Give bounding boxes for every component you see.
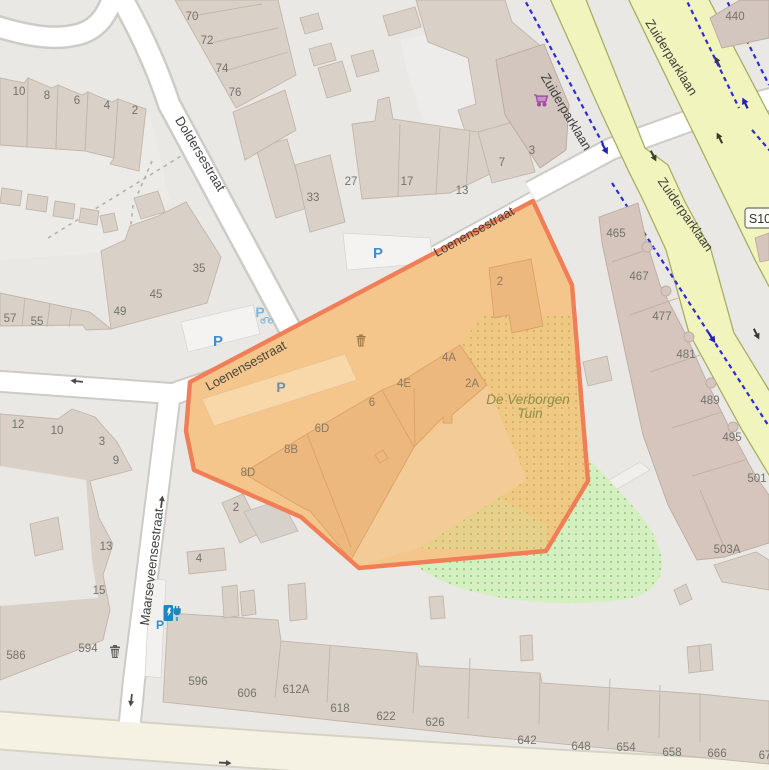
svg-text:606: 606 — [237, 688, 256, 700]
svg-text:2: 2 — [497, 276, 503, 288]
svg-text:74: 74 — [216, 63, 229, 75]
svg-text:8: 8 — [44, 90, 50, 102]
svg-text:12: 12 — [12, 419, 25, 431]
svg-text:3: 3 — [99, 436, 105, 448]
svg-text:489: 489 — [700, 395, 719, 407]
svg-text:67: 67 — [759, 750, 769, 762]
svg-text:666: 666 — [707, 748, 726, 760]
svg-text:S10: S10 — [749, 212, 769, 226]
svg-text:De Verborgen: De Verborgen — [486, 392, 570, 407]
svg-text:642: 642 — [517, 735, 536, 747]
svg-text:27: 27 — [345, 176, 358, 188]
svg-text:467: 467 — [629, 271, 648, 283]
svg-text:503A: 503A — [714, 544, 741, 556]
svg-text:76: 76 — [229, 87, 242, 99]
svg-text:4E: 4E — [397, 378, 411, 390]
svg-text:49: 49 — [114, 306, 127, 318]
svg-text:P: P — [255, 304, 264, 320]
svg-text:622: 622 — [376, 711, 395, 723]
svg-text:57: 57 — [4, 313, 17, 325]
svg-text:3: 3 — [529, 145, 535, 157]
svg-text:586: 586 — [6, 650, 25, 662]
svg-text:45: 45 — [150, 289, 163, 301]
svg-text:495: 495 — [722, 432, 741, 444]
svg-text:55: 55 — [31, 316, 44, 328]
svg-text:465: 465 — [606, 228, 625, 240]
svg-text:440: 440 — [725, 11, 744, 23]
svg-text:2: 2 — [233, 502, 239, 514]
svg-text:P: P — [213, 333, 223, 350]
svg-text:658: 658 — [662, 747, 681, 759]
svg-text:13: 13 — [100, 541, 113, 553]
svg-text:612A: 612A — [283, 684, 310, 696]
svg-text:4: 4 — [196, 553, 203, 565]
svg-text:618: 618 — [330, 703, 349, 715]
svg-text:4: 4 — [104, 100, 111, 112]
svg-text:501: 501 — [747, 473, 766, 485]
svg-text:P: P — [276, 379, 285, 395]
svg-text:35: 35 — [193, 263, 206, 275]
svg-text:4A: 4A — [442, 352, 456, 364]
svg-text:8D: 8D — [241, 467, 256, 479]
svg-text:6: 6 — [74, 95, 80, 107]
svg-text:648: 648 — [571, 741, 590, 753]
svg-text:596: 596 — [188, 676, 207, 688]
svg-text:481: 481 — [676, 349, 695, 361]
svg-text:477: 477 — [652, 311, 671, 323]
svg-text:15: 15 — [93, 585, 106, 597]
svg-text:2A: 2A — [465, 378, 479, 390]
svg-text:10: 10 — [51, 425, 64, 437]
svg-text:Tuin: Tuin — [517, 406, 542, 421]
svg-text:17: 17 — [401, 176, 414, 188]
svg-text:594: 594 — [78, 643, 98, 655]
svg-text:P: P — [373, 245, 383, 262]
svg-text:7: 7 — [499, 157, 505, 169]
svg-text:70: 70 — [186, 11, 199, 23]
svg-text:654: 654 — [616, 742, 636, 754]
svg-text:10: 10 — [13, 86, 26, 98]
svg-text:13: 13 — [456, 185, 469, 197]
svg-text:626: 626 — [425, 717, 444, 729]
svg-text:72: 72 — [201, 35, 214, 47]
svg-text:2: 2 — [132, 105, 138, 117]
svg-text:6: 6 — [369, 397, 375, 409]
svg-text:8B: 8B — [284, 444, 298, 456]
svg-text:P: P — [156, 618, 164, 632]
svg-text:33: 33 — [307, 192, 320, 204]
svg-text:9: 9 — [113, 455, 119, 467]
svg-text:6D: 6D — [315, 423, 330, 435]
